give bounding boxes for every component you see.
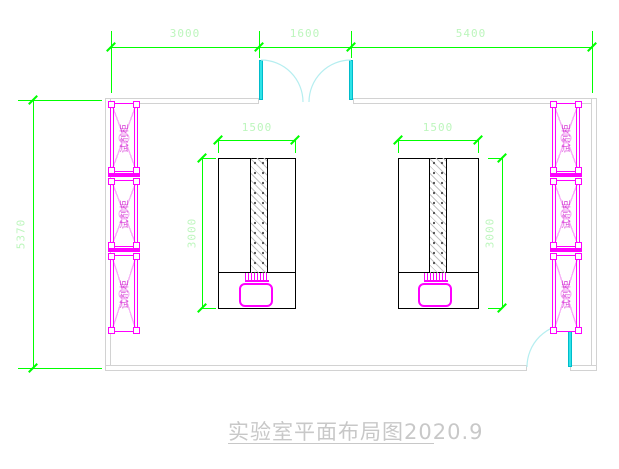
bench-right-width-ext-1 xyxy=(398,140,399,153)
cabinet-connector xyxy=(550,248,582,252)
top-extension-4 xyxy=(592,31,593,93)
bench-left-depth-stub-top xyxy=(202,158,216,159)
bench-left-depth-dim-line xyxy=(202,158,203,308)
door-arcs-and-sink-lines xyxy=(0,0,619,469)
floor-plan-canvas: 3000 1600 5400 5370 1500 3000 1500 3000 xyxy=(0,0,619,469)
cabinet-connector xyxy=(550,173,582,177)
dimension-label-bench-left-width: 1500 xyxy=(242,121,273,134)
left-dimension-line xyxy=(33,100,34,368)
lab-bench-left-service-strip xyxy=(250,158,268,273)
cabinet-connector xyxy=(108,173,140,177)
dimension-label-bench-right-depth: 3000 xyxy=(484,218,497,249)
sink-left-grate xyxy=(245,273,269,282)
double-door-right-arc xyxy=(309,60,351,102)
bench-left-width-ext-1 xyxy=(218,140,219,153)
wall-bottom-right-segment xyxy=(570,365,597,371)
sink-right-basin xyxy=(418,283,452,307)
cabinet-connector xyxy=(108,248,140,252)
wall-bottom-left-segment xyxy=(105,365,527,371)
wall-right xyxy=(591,98,597,371)
sink-right-grate xyxy=(424,273,448,282)
reagent-cabinet: 试剂柜 xyxy=(110,103,138,172)
dimension-label-bench-left-depth: 3000 xyxy=(186,218,199,249)
bench-right-width-dim-line xyxy=(398,140,479,141)
dimension-label-top-right: 5400 xyxy=(456,27,487,40)
double-door-left-leaf xyxy=(259,60,263,100)
cabinet-label: 试剂柜 xyxy=(560,122,573,152)
bench-right-width-ext-2 xyxy=(478,140,479,153)
cabinet-label: 试剂柜 xyxy=(560,278,573,308)
reagent-cabinet: 试剂柜 xyxy=(552,180,580,247)
dimension-label-top-left: 3000 xyxy=(170,27,201,40)
top-extension-1 xyxy=(111,31,112,93)
double-door-right-leaf xyxy=(349,60,353,100)
sink-left-basin xyxy=(239,283,273,307)
cabinet-label: 试剂柜 xyxy=(560,198,573,228)
double-door-left-arc xyxy=(261,60,303,102)
dimension-label-room-height: 5370 xyxy=(15,219,28,250)
reagent-cabinet: 试剂柜 xyxy=(552,255,580,332)
bench-left-width-ext-2 xyxy=(295,140,296,153)
reagent-cabinet: 试剂柜 xyxy=(110,255,138,332)
dimension-label-top-middle: 1600 xyxy=(290,27,321,40)
lab-bench-right-service-strip xyxy=(429,158,447,273)
reagent-cabinet: 试剂柜 xyxy=(110,180,138,247)
bench-left-depth-stub-bottom xyxy=(202,308,216,309)
bench-left-width-dim-line xyxy=(218,140,296,141)
reagent-cabinet: 试剂柜 xyxy=(552,103,580,172)
bench-right-depth-dim-line xyxy=(502,158,503,308)
drawing-title: 实验室平面布局图2020.9 xyxy=(228,416,483,446)
title-underline xyxy=(228,443,434,444)
dimension-label-bench-right-width: 1500 xyxy=(423,121,454,134)
cabinet-label: 试剂柜 xyxy=(118,278,131,308)
cabinet-label: 试剂柜 xyxy=(118,122,131,152)
cabinet-label: 试剂柜 xyxy=(118,198,131,228)
